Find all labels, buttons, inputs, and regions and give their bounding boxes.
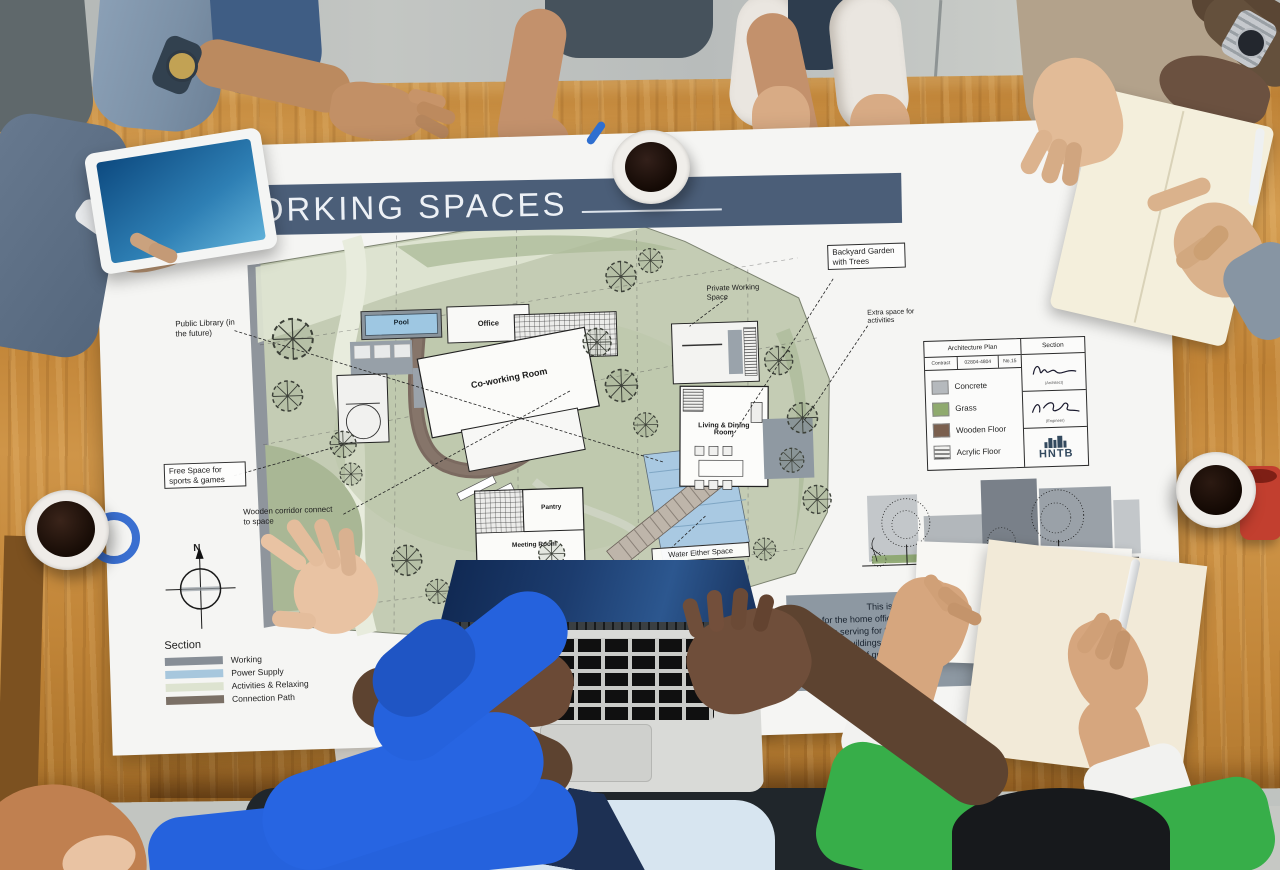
legend-item-label: Acrylic Floor (957, 446, 1001, 456)
legend-item: Grass (932, 400, 1022, 417)
coffee-surface (37, 501, 95, 557)
room-label-living: Living & Dining Room (693, 422, 755, 436)
section-legend-item: Connection Path (166, 691, 309, 705)
title-underline (582, 208, 722, 213)
signature-caption: (Engineer) (1046, 417, 1065, 423)
person-topcenter-torso (545, 0, 713, 58)
activities-bar (166, 682, 224, 692)
page-title: ORKING SPACES (257, 185, 567, 229)
wooden-floor-swatch (933, 424, 950, 439)
legend-item: Wooden Floor (933, 421, 1023, 438)
signature-icon (1028, 395, 1081, 419)
annotation-free-space: Free Space for sports & games (164, 461, 247, 489)
legend-item-label: Grass (955, 403, 977, 413)
legend-item-label: Concrete (954, 381, 987, 391)
photo-scene: ORKING SPACES Pool Office Co-working Roo… (0, 0, 1280, 870)
annotation-extra-space: Extra space for activities (867, 308, 918, 326)
contract-label: Contract (925, 357, 958, 370)
tablet-screen (96, 138, 266, 263)
architect-signature-cell: (Architect) (1022, 353, 1086, 392)
connection-path-bar (166, 695, 224, 705)
legend-table-right: Section (Architect) (Engineer) HNTB (1021, 337, 1088, 467)
section-legend-item: Power Supply (165, 666, 308, 680)
hntb-logo-text: HNTB (1039, 447, 1074, 460)
sheet-number: No.15 (999, 355, 1021, 368)
section-legend-label: Activities & Relaxing (231, 679, 308, 691)
coffee-surface (625, 142, 677, 192)
silver-watch-face (1236, 28, 1266, 58)
section-legend-label: Working (231, 654, 262, 665)
hntb-logo: HNTB (1024, 427, 1088, 467)
working-bar (165, 656, 223, 666)
coffee-cup-top (612, 130, 690, 204)
acrylic-floor-swatch (933, 445, 950, 460)
legend-table-left: Architecture Plan Contract 02804-4804 No… (924, 339, 1025, 470)
contract-number: 02804-4804 (958, 356, 999, 369)
watch-face (166, 50, 198, 82)
coffee-cup-right (1176, 452, 1256, 528)
section-legend-label: Power Supply (231, 666, 284, 678)
legend-swatches: Concrete Grass Wooden Floor Acrylic Floo… (925, 368, 1024, 470)
compass-icon (164, 546, 237, 630)
legend-item: Acrylic Floor (933, 443, 1023, 460)
notebook-crease (1134, 111, 1185, 323)
legend-item: Concrete (931, 378, 1021, 395)
skyline-icon (1042, 434, 1070, 448)
legend-table: Architecture Plan Contract 02804-4804 No… (923, 336, 1089, 471)
legend-item-label: Wooden Floor (956, 424, 1006, 435)
coffee-surface (1190, 465, 1242, 515)
annotation-backyard: Backyard Garden with Trees (827, 243, 906, 271)
signature-caption: (Architect) (1045, 379, 1063, 385)
section-legend-item: Working (165, 653, 308, 667)
coffee-cup-left (25, 490, 109, 570)
grass-swatch (932, 402, 949, 417)
section-legend-label: Connection Path (232, 692, 295, 704)
section-legend: Section Working Power Supply Activities … (164, 636, 309, 709)
section-legend-item: Activities & Relaxing (166, 679, 309, 693)
annotation-public-library: Public Library (in the future) (175, 317, 242, 338)
concrete-swatch (931, 380, 948, 395)
signature-icon (1028, 359, 1079, 381)
power-supply-bar (165, 669, 223, 679)
room-label-office: Office (459, 318, 517, 329)
compass-north-label: N (193, 543, 201, 555)
engineer-signature-cell: (Engineer) (1023, 390, 1087, 429)
annotation-private-working: Private Working Space (706, 282, 765, 302)
